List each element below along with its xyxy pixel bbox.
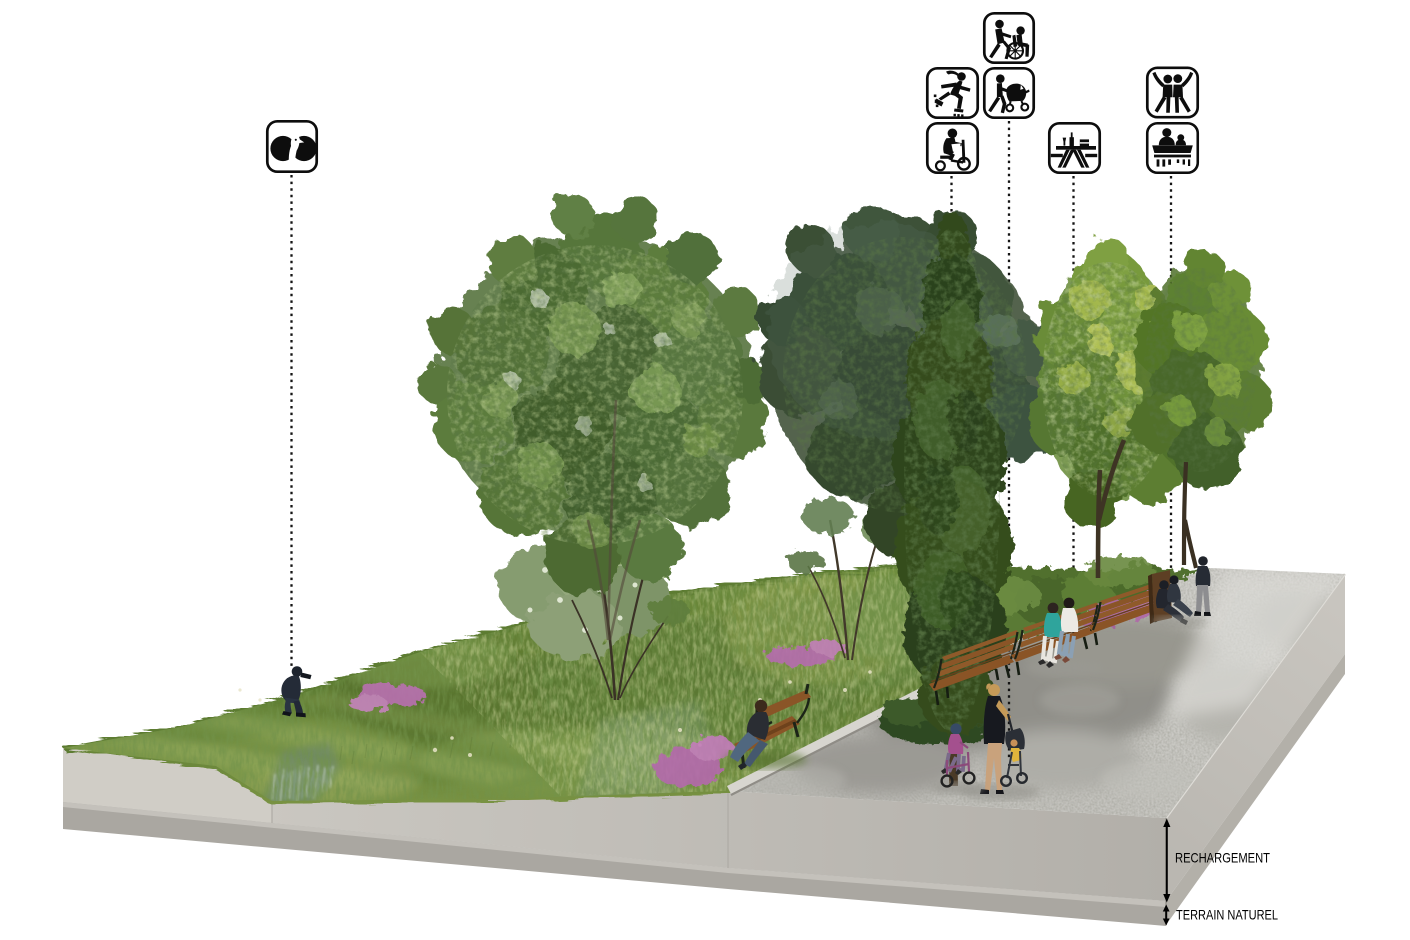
svg-text:RECHARGEMENT: RECHARGEMENT [1175,851,1270,866]
svg-text:TERRAIN NATUREL: TERRAIN NATUREL [1176,908,1278,923]
